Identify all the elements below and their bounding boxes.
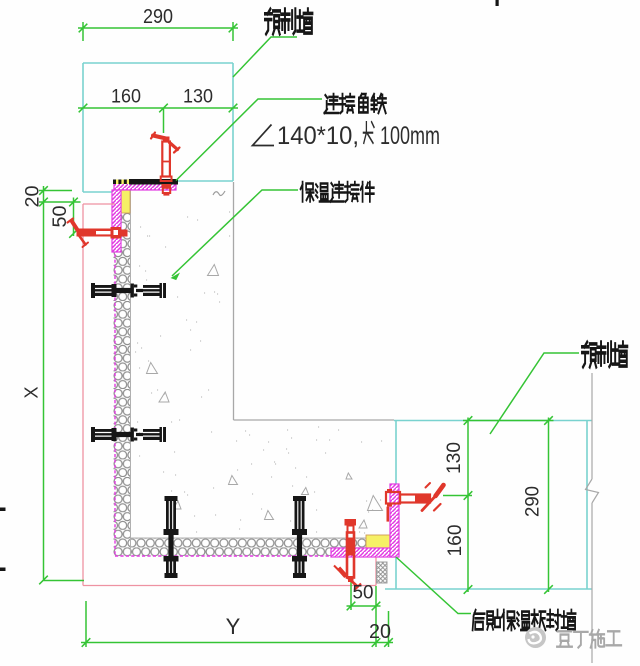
svg-text:290: 290 bbox=[143, 6, 173, 28]
svg-text:140*10,: 140*10, bbox=[277, 122, 359, 150]
svg-text:50: 50 bbox=[50, 206, 71, 228]
svg-text:160: 160 bbox=[111, 87, 141, 108]
svg-text:20: 20 bbox=[23, 186, 44, 208]
svg-text:160: 160 bbox=[444, 524, 466, 556]
svg-text:100mm: 100mm bbox=[380, 122, 440, 150]
svg-text:20: 20 bbox=[369, 621, 391, 643]
svg-text:50: 50 bbox=[353, 582, 374, 604]
svg-text:X: X bbox=[22, 386, 42, 398]
svg-text:Y: Y bbox=[226, 614, 241, 639]
svg-text:130: 130 bbox=[183, 87, 213, 108]
svg-text:130: 130 bbox=[443, 442, 465, 474]
svg-text:290: 290 bbox=[523, 486, 544, 517]
